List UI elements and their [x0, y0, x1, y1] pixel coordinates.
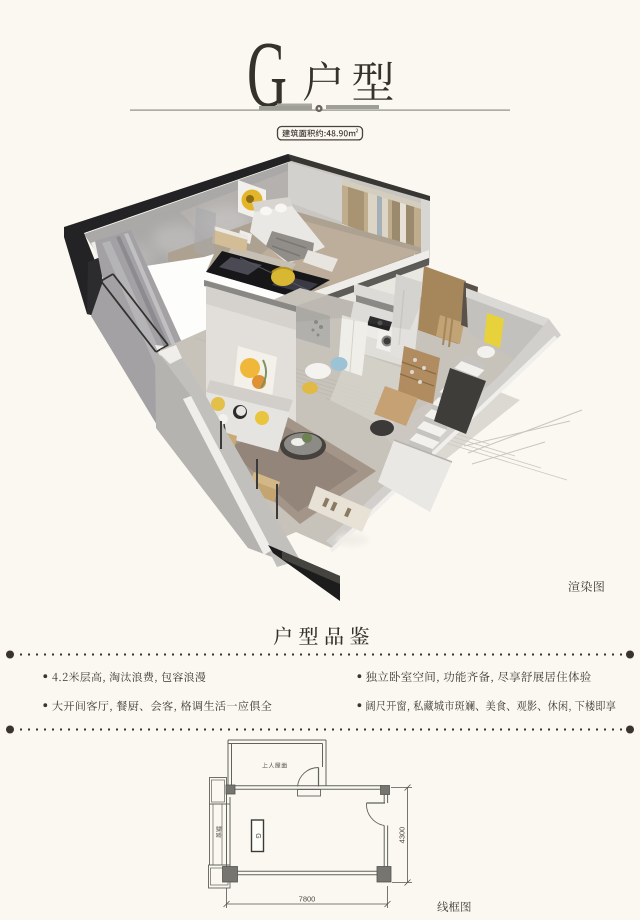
svg-text:G: G: [247, 23, 287, 127]
svg-text:G: G: [254, 833, 261, 838]
svg-text:7800: 7800: [299, 895, 316, 904]
svg-text:4300: 4300: [398, 827, 407, 844]
